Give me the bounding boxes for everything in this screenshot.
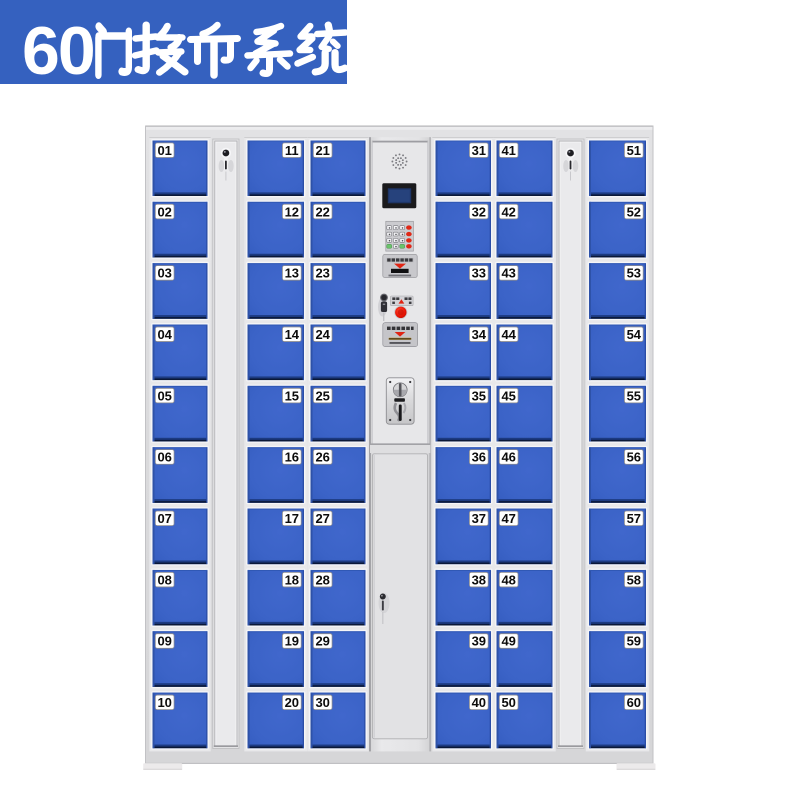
svg-text:42: 42	[501, 204, 515, 219]
svg-text:60: 60	[22, 13, 94, 89]
svg-text:47: 47	[501, 511, 515, 526]
svg-text:26: 26	[315, 450, 329, 465]
svg-text:21: 21	[315, 143, 329, 158]
svg-text:35: 35	[472, 388, 486, 403]
svg-text:60: 60	[627, 695, 641, 710]
svg-text:29: 29	[315, 634, 329, 649]
svg-text:09: 09	[157, 634, 171, 649]
svg-text:56: 56	[627, 450, 641, 465]
svg-text:32: 32	[472, 204, 486, 219]
svg-text:24: 24	[315, 327, 330, 342]
svg-text:02: 02	[157, 204, 171, 219]
svg-text:22: 22	[315, 204, 329, 219]
svg-text:40: 40	[472, 695, 486, 710]
svg-text:53: 53	[627, 266, 641, 281]
svg-text:28: 28	[315, 572, 329, 587]
svg-text:07: 07	[157, 511, 171, 526]
svg-text:19: 19	[285, 634, 299, 649]
svg-text:50: 50	[501, 695, 515, 710]
svg-text:04: 04	[157, 327, 172, 342]
svg-text:45: 45	[501, 388, 515, 403]
svg-text:57: 57	[627, 511, 641, 526]
svg-text:48: 48	[501, 572, 515, 587]
svg-text:06: 06	[157, 450, 171, 465]
svg-text:23: 23	[315, 266, 329, 281]
svg-text:01: 01	[157, 143, 171, 158]
svg-text:14: 14	[285, 327, 300, 342]
svg-text:59: 59	[627, 634, 641, 649]
svg-text:39: 39	[472, 634, 486, 649]
svg-text:12: 12	[285, 204, 299, 219]
svg-text:38: 38	[472, 572, 486, 587]
svg-text:13: 13	[285, 266, 299, 281]
svg-text:15: 15	[285, 388, 299, 403]
svg-text:31: 31	[472, 143, 486, 158]
svg-text:10: 10	[157, 695, 171, 710]
svg-text:33: 33	[472, 266, 486, 281]
svg-text:55: 55	[627, 388, 641, 403]
svg-text:18: 18	[285, 572, 299, 587]
svg-text:16: 16	[285, 450, 299, 465]
svg-text:34: 34	[472, 327, 487, 342]
svg-text:52: 52	[627, 204, 641, 219]
svg-text:58: 58	[627, 572, 641, 587]
svg-text:51: 51	[627, 143, 641, 158]
svg-text:43: 43	[501, 266, 515, 281]
svg-text:11: 11	[285, 143, 299, 158]
svg-text:37: 37	[472, 511, 486, 526]
svg-text:54: 54	[627, 327, 642, 342]
svg-text:44: 44	[501, 327, 516, 342]
svg-text:03: 03	[157, 266, 171, 281]
svg-text:20: 20	[285, 695, 299, 710]
svg-text:17: 17	[285, 511, 299, 526]
svg-text:30: 30	[315, 695, 329, 710]
svg-text:08: 08	[157, 572, 171, 587]
svg-text:49: 49	[501, 634, 515, 649]
svg-text:46: 46	[501, 450, 515, 465]
svg-text:36: 36	[472, 450, 486, 465]
svg-text:05: 05	[157, 388, 171, 403]
svg-text:25: 25	[315, 388, 329, 403]
svg-text:27: 27	[315, 511, 329, 526]
svg-text:41: 41	[501, 143, 515, 158]
